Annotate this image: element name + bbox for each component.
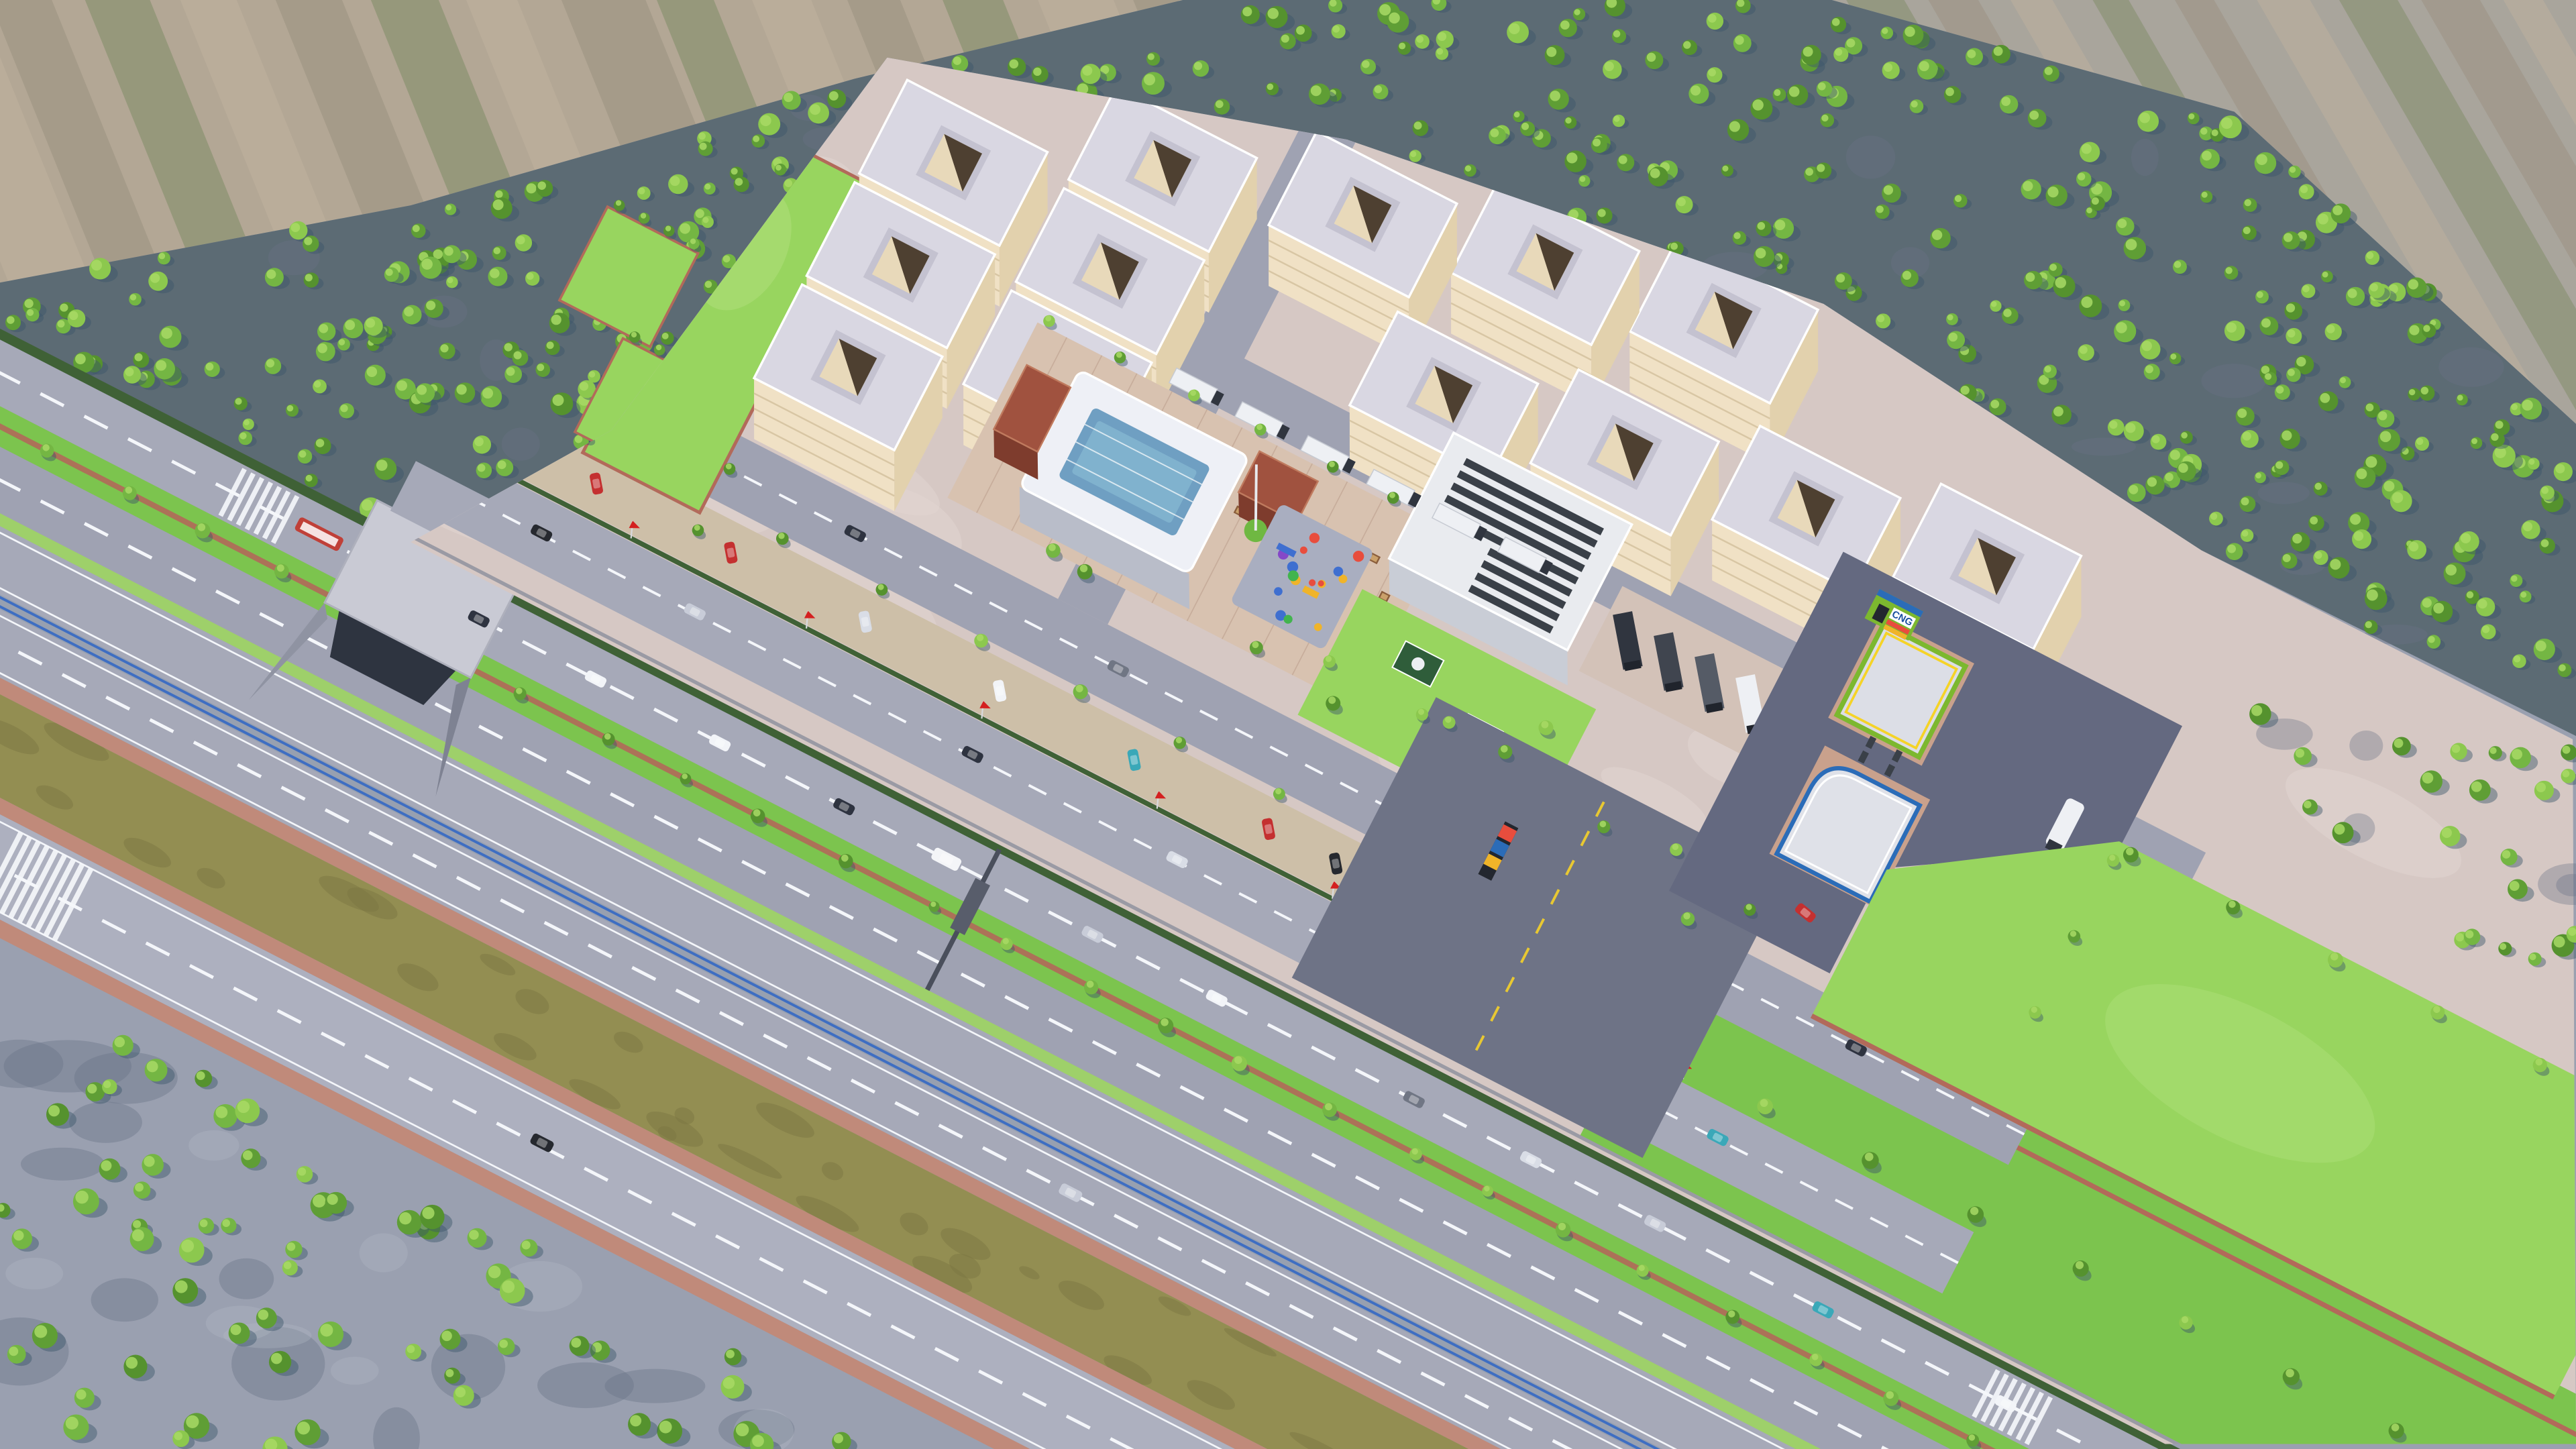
tree-highlight (200, 1220, 208, 1228)
tree-highlight (2541, 487, 2548, 494)
tree-highlight (2261, 319, 2271, 328)
tree-highlight (2465, 930, 2473, 938)
tree-highlight (156, 360, 166, 371)
tree-highlight (396, 380, 407, 391)
tree-highlight (34, 1325, 47, 1338)
tree-highlight (235, 398, 241, 405)
tree-highlight (2283, 554, 2291, 562)
tree-highlight (2029, 111, 2039, 120)
tree-highlight (103, 1081, 111, 1088)
tree-highlight (2081, 297, 2092, 308)
tree-highlight (2225, 267, 2232, 274)
tree-highlight (2482, 626, 2489, 633)
tree-highlight (2257, 154, 2267, 165)
tree-highlight (2023, 181, 2033, 191)
tree-highlight (2001, 97, 2010, 106)
tree-highlight (132, 1229, 144, 1241)
terrain-mottle (189, 1130, 239, 1161)
tree-highlight (731, 168, 738, 174)
tree-highlight (174, 1432, 182, 1440)
tree-highlight (1311, 85, 1322, 96)
tree-highlight (1805, 168, 1813, 176)
tree-highlight (723, 256, 731, 263)
terrain-mottle (604, 1369, 705, 1403)
tree-highlight (159, 253, 166, 260)
tree-highlight (1994, 46, 2003, 56)
tree-highlight (1884, 63, 1892, 72)
tree-highlight (2457, 395, 2463, 401)
tree-highlight (2421, 387, 2428, 394)
tree-highlight (2147, 477, 2157, 486)
tree-highlight (2315, 483, 2322, 490)
tree-highlight (239, 433, 246, 439)
tree-highlight (2241, 497, 2249, 505)
tree-highlight (580, 382, 588, 390)
tree-highlight (66, 1417, 78, 1430)
tree-highlight (362, 499, 373, 511)
tree-highlight (1877, 315, 1884, 322)
tree-highlight (243, 1150, 253, 1161)
tree-highlight (297, 1421, 310, 1434)
tree-highlight (2170, 354, 2176, 360)
tree-highlight (2471, 782, 2482, 792)
terrain-mottle (2349, 731, 2383, 761)
tree-highlight (147, 1061, 158, 1072)
tree-highlight (2392, 492, 2403, 503)
tree-highlight (2365, 621, 2372, 628)
tree-highlight (2559, 664, 2565, 671)
tree-highlight (2188, 113, 2194, 119)
tree-highlight (736, 1424, 749, 1436)
tree-highlight (407, 1345, 415, 1353)
tree-highlight (1683, 41, 1690, 48)
tree-highlight (440, 344, 448, 352)
tree-highlight (306, 475, 313, 482)
tree-highlight (1911, 101, 1917, 107)
tree-highlight (488, 1266, 501, 1279)
tree-highlight (2502, 850, 2511, 859)
tree-highlight (1613, 30, 1621, 38)
tree-highlight (753, 136, 759, 142)
tree-highlight (2165, 473, 2173, 482)
tree-highlight (133, 1220, 141, 1228)
tree-highlight (2383, 481, 2394, 492)
tree-highlight (1296, 26, 1305, 35)
tree-highlight (1729, 121, 1740, 132)
tree-highlight (1490, 129, 1499, 138)
tree-highlight (2119, 301, 2125, 307)
tree-highlight (2536, 782, 2546, 792)
tree-highlight (1438, 32, 1446, 41)
tree-highlight (1574, 9, 1580, 15)
tree-highlight (1967, 50, 1976, 58)
tree-highlight (447, 277, 453, 283)
tree-highlight (135, 353, 143, 361)
tree-highlight (1514, 111, 1520, 117)
tree-highlight (399, 1212, 411, 1224)
tree-highlight (1009, 59, 1018, 68)
terrain-mottle (69, 1102, 142, 1142)
tree-highlight (1148, 53, 1155, 60)
tree-highlight (1144, 74, 1155, 85)
tree-highlight (2047, 186, 2058, 197)
tree-highlight (1613, 115, 1619, 121)
tree-highlight (2026, 272, 2035, 282)
tree-highlight (2251, 705, 2262, 716)
tree-highlight (1904, 26, 1915, 36)
tree-highlight (422, 1207, 434, 1219)
tree-highlight (1947, 315, 1953, 321)
tree-highlight (313, 1195, 325, 1207)
tree-highlight (1650, 168, 1660, 178)
tree-highlight (1882, 28, 1888, 34)
tree-highlight (444, 247, 453, 256)
terrain-mottle (1846, 136, 1896, 178)
tree-highlight (2332, 205, 2343, 215)
tree-highlight (2514, 655, 2520, 662)
tree-highlight (2428, 636, 2434, 643)
tree-highlight (2221, 117, 2233, 129)
tree-highlight (2433, 603, 2444, 614)
tree-highlight (2314, 551, 2322, 559)
tree-highlight (299, 450, 307, 458)
tree-highlight (2408, 279, 2418, 289)
tree-highlight (291, 223, 301, 232)
tree-highlight (1733, 232, 1740, 239)
tree-highlight (76, 1389, 87, 1399)
tree-highlight (537, 181, 546, 190)
tree-highlight (1756, 248, 1766, 259)
tree-highlight (2367, 590, 2378, 601)
tree-highlight (2129, 485, 2138, 494)
tree-highlight (1919, 61, 1929, 71)
tree-highlight (1565, 117, 1571, 123)
tree-highlight (13, 1230, 23, 1240)
tree-highlight (386, 268, 393, 276)
tree-highlight (284, 1261, 292, 1269)
tree-highlight (2125, 423, 2135, 433)
tree-highlight (2409, 325, 2419, 335)
tree-highlight (659, 1421, 672, 1434)
tree-highlight (2528, 459, 2534, 465)
tree-highlight (2471, 438, 2477, 444)
tree-highlight (2367, 252, 2374, 259)
tree-highlight (490, 268, 500, 278)
tree-highlight (114, 1037, 125, 1048)
tree-highlight (91, 260, 102, 270)
tree-highlight (2178, 463, 2188, 473)
tree-highlight (1836, 274, 1845, 282)
tree-highlight (2340, 377, 2346, 383)
tree-highlight (340, 405, 347, 412)
tree-highlight (2142, 341, 2152, 351)
tree-highlight (2520, 592, 2526, 598)
tree-highlight (417, 385, 427, 395)
tree-highlight (24, 299, 33, 308)
tree-highlight (367, 366, 378, 377)
tree-highlight (537, 364, 544, 371)
tree-highlight (413, 225, 420, 232)
tree-highlight (2541, 539, 2549, 547)
tree-highlight (1281, 35, 1289, 43)
tree-highlight (1821, 115, 1828, 121)
tree-highlight (1546, 47, 1556, 57)
tree-highlight (181, 1240, 194, 1252)
tree-highlight (1647, 53, 1656, 62)
tree-highlight (2181, 432, 2188, 439)
tree-highlight (2210, 513, 2217, 520)
tree-highlight (705, 281, 712, 288)
terrain-mottle (2258, 482, 2310, 504)
tree-highlight (1677, 197, 1686, 206)
tree-highlight (9, 1346, 18, 1356)
tree-highlight (1735, 36, 1744, 45)
tree-highlight (317, 343, 327, 353)
tree-highlight (2243, 431, 2251, 440)
tree-highlight (1991, 301, 1997, 307)
tree-highlight (662, 333, 669, 339)
tree-highlight (2045, 366, 2051, 372)
tree-highlight (2477, 599, 2487, 608)
tree-highlight (2080, 345, 2088, 354)
tree-highlight (1876, 206, 1884, 213)
tree-highlight (1194, 62, 1202, 70)
tree-highlight (2139, 113, 2150, 123)
tree-highlight (2290, 166, 2296, 172)
tree-highlight (197, 1071, 205, 1080)
tree-highlight (1465, 166, 1471, 172)
tree-highlight (1362, 60, 1370, 68)
tree-highlight (1410, 151, 1416, 157)
tree-highlight (2562, 746, 2570, 754)
tree-highlight (1033, 68, 1041, 76)
tree-highlight (222, 1219, 230, 1227)
tree-highlight (517, 236, 525, 245)
tree-highlight (2510, 881, 2520, 891)
tree-highlight (1389, 13, 1400, 24)
tree-highlight (698, 133, 706, 140)
tree-highlight (726, 1350, 735, 1358)
tree-highlight (2512, 749, 2522, 759)
tree-highlight (2092, 197, 2099, 205)
tree-highlight (1593, 138, 1601, 146)
tree-highlight (2365, 456, 2377, 468)
terrain-mottle (360, 1234, 408, 1273)
tree-highlight (1216, 100, 1224, 108)
tree-highlight (69, 311, 78, 320)
tree-highlight (1332, 25, 1340, 33)
tree-highlight (469, 1230, 479, 1240)
tree-highlight (2452, 745, 2461, 753)
tree-highlight (810, 104, 820, 115)
tree-highlight (2212, 129, 2218, 136)
tree-highlight (571, 1338, 581, 1348)
tree-highlight (2257, 291, 2263, 298)
tree-highlight (266, 270, 276, 279)
tree-highlight (1775, 220, 1786, 231)
tree-highlight (2286, 303, 2295, 312)
tree-highlight (314, 380, 321, 387)
tree-highlight (2117, 219, 2127, 228)
tree-highlight (522, 1240, 531, 1249)
tree-highlight (2078, 173, 2085, 180)
tree-highlight (2322, 272, 2328, 278)
tree-highlight (327, 1194, 338, 1205)
tree-highlight (271, 1353, 282, 1364)
tree-highlight (953, 56, 961, 64)
terrain-mottle (2438, 347, 2504, 387)
tree-highlight (2276, 386, 2284, 394)
tree-highlight (2082, 144, 2092, 154)
tree-highlight (455, 1387, 466, 1398)
tree-highlight (2409, 389, 2415, 395)
terrain-mottle (2201, 364, 2265, 398)
tree-highlight (2284, 233, 2292, 241)
tree-highlight (2347, 288, 2357, 298)
tree-highlight (231, 1324, 241, 1335)
tree-highlight (1835, 48, 1842, 56)
tree-highlight (1414, 121, 1422, 129)
tree-highlight (126, 1357, 138, 1369)
terrain-mottle (21, 1148, 105, 1181)
tree-highlight (2357, 468, 2367, 479)
tree-highlight (186, 1415, 199, 1428)
tree-highlight (2242, 530, 2249, 537)
tree-highlight (1268, 8, 1279, 19)
tree-highlight (735, 178, 743, 186)
tree-highlight (1708, 14, 1717, 23)
tree-highlight (1846, 39, 1855, 48)
tree-highlight (2170, 450, 2180, 460)
tree-highlight (1690, 85, 1701, 95)
tree-highlight (2461, 533, 2471, 543)
tree-highlight (1758, 222, 1766, 230)
tree-highlight (1242, 7, 1252, 16)
tree-highlight (445, 205, 451, 211)
tree-highlight (514, 352, 522, 360)
tree-highlight (2380, 431, 2392, 442)
tree-highlight (752, 1435, 764, 1447)
tree-highlight (445, 1369, 453, 1377)
tree-highlight (495, 191, 502, 198)
tree-highlight (2049, 264, 2057, 271)
tree-highlight (494, 248, 501, 255)
tree-highlight (2302, 285, 2310, 292)
tree-highlight (2237, 409, 2247, 418)
tree-highlight (7, 316, 15, 324)
tree-highlight (504, 343, 513, 351)
tree-highlight (2245, 199, 2251, 206)
tree-highlight (1566, 152, 1577, 163)
tree-highlight (2326, 325, 2335, 333)
tree-highlight (75, 354, 86, 364)
tree-highlight (1560, 21, 1570, 30)
tree-highlight (2334, 824, 2345, 835)
tree-highlight (704, 184, 710, 190)
tree-highlight (1961, 386, 1970, 394)
terrain-mottle (219, 1258, 274, 1299)
tree-highlight (2287, 329, 2295, 337)
tree-highlight (482, 388, 493, 398)
tree-highlight (2145, 365, 2153, 373)
tree-highlight (553, 394, 564, 406)
tree-highlight (2409, 542, 2418, 551)
tree-highlight (1379, 4, 1391, 15)
tree-highlight (2304, 801, 2311, 808)
tree-highlight (2265, 373, 2271, 380)
tree-highlight (320, 1324, 333, 1336)
terrain-mottle (2131, 139, 2159, 176)
tree-highlight (498, 460, 506, 469)
tree-highlight (304, 237, 312, 245)
tree-highlight (2086, 207, 2092, 213)
tree-highlight (2523, 522, 2532, 531)
tree-highlight (2330, 559, 2341, 570)
tree-highlight (589, 371, 595, 377)
tree-highlight (57, 320, 64, 327)
tree-highlight (1752, 99, 1763, 110)
tree-highlight (258, 1309, 268, 1320)
tree-highlight (316, 439, 325, 447)
tree-highlight (2446, 564, 2457, 575)
tree-highlight (2350, 514, 2361, 525)
tree-highlight (2202, 192, 2208, 198)
tree-highlight (1605, 62, 1614, 71)
tree-highlight (266, 359, 274, 367)
tree-highlight (75, 1191, 88, 1203)
tree-highlight (2282, 431, 2292, 441)
tree-highlight (2490, 747, 2497, 754)
terrain-mottle (502, 427, 540, 460)
terrain-mottle (91, 1278, 158, 1322)
tree-highlight (2529, 953, 2536, 960)
tree-highlight (829, 91, 839, 101)
tree-highlight (1884, 185, 1893, 195)
tree-highlight (125, 368, 133, 376)
tree-highlight (2511, 404, 2518, 411)
tree-highlight (2370, 283, 2378, 291)
tree-highlight (404, 307, 413, 316)
tree-highlight (1375, 85, 1382, 93)
tree-highlight (2500, 943, 2506, 950)
tree-highlight (2255, 473, 2261, 479)
tree-highlight (366, 318, 375, 327)
tree-highlight (2055, 277, 2066, 288)
tree-highlight (1437, 48, 1444, 55)
tree-highlight (144, 1156, 154, 1167)
tree-highlight (319, 324, 328, 333)
tree-highlight (2423, 325, 2430, 331)
tree-highlight (2226, 323, 2237, 333)
aerial-render-industrial-park: CNG (0, 0, 2576, 1449)
tree-highlight (2320, 393, 2330, 403)
tree-highlight (526, 183, 536, 193)
tree-highlight (2555, 464, 2565, 474)
tree-highlight (1990, 400, 1999, 409)
tree-highlight (135, 1183, 144, 1192)
tree-highlight (1598, 209, 1606, 217)
tree-highlight (506, 367, 515, 376)
tree-highlight (2422, 598, 2432, 608)
tree-highlight (2467, 591, 2474, 598)
tree-highlight (702, 217, 708, 223)
tree-highlight (551, 315, 561, 325)
tree-highlight (2202, 151, 2212, 161)
tree-highlight (2296, 749, 2304, 757)
tree-highlight (2491, 433, 2498, 441)
tree-highlight (2495, 421, 2504, 429)
tree-highlight (150, 273, 160, 282)
